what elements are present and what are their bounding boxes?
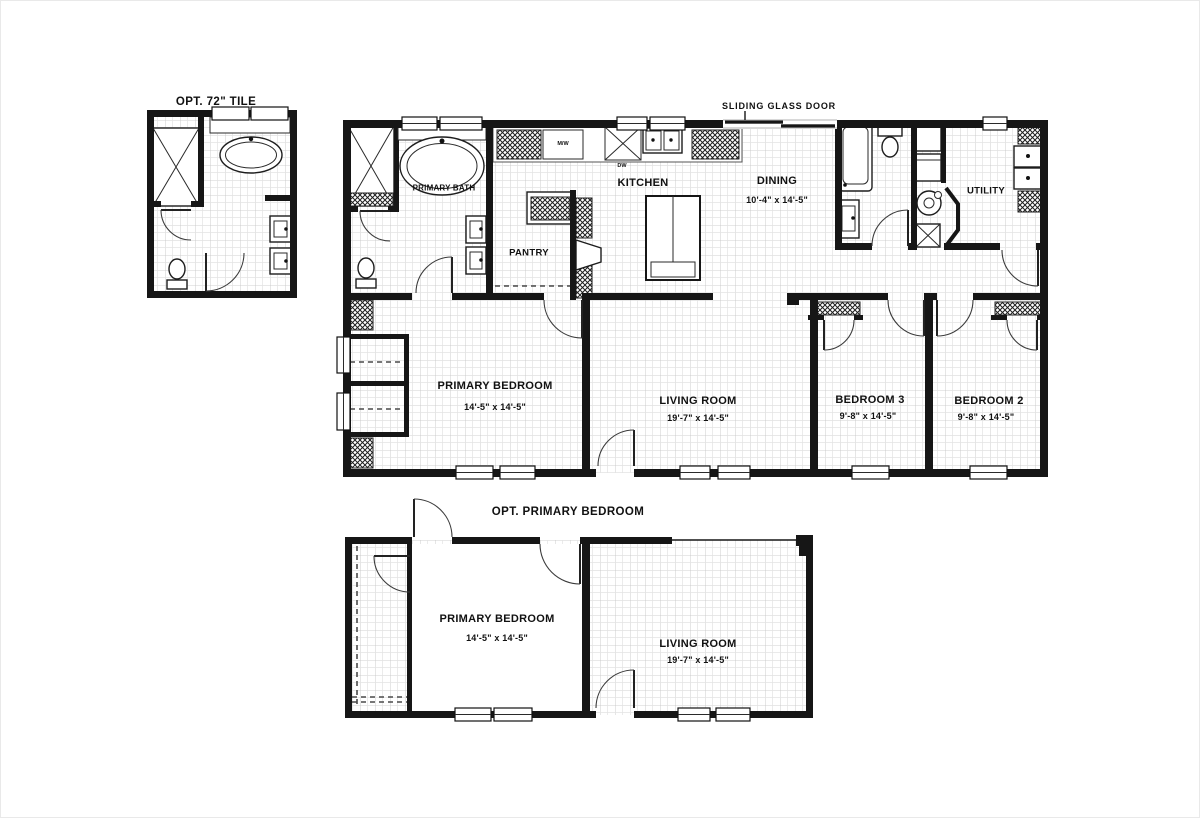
water-heater — [916, 224, 940, 247]
washer — [917, 191, 942, 215]
window — [251, 107, 288, 120]
door-arc — [414, 499, 452, 537]
carpet-floor — [412, 544, 582, 711]
floor-plan-graphics — [0, 0, 1200, 818]
opt-tile-plan-title: OPT. 72" TILE — [176, 96, 256, 108]
shower — [153, 128, 199, 206]
room-dims-bedroom-2: 9'-8" x 14'-5" — [958, 412, 1015, 422]
kitchen-island — [646, 196, 700, 280]
toilet — [356, 258, 376, 288]
window — [212, 107, 249, 120]
room-label-dining: DINING — [757, 175, 797, 187]
sink — [270, 248, 291, 274]
room-label-utility: UTILITY — [967, 186, 1005, 197]
sink — [270, 216, 291, 242]
room-dims-primary-bedroom: 14'-5" x 14'-5" — [464, 402, 526, 412]
counter-hatch — [497, 130, 541, 159]
room-label-bedroom-2: BEDROOM 2 — [954, 395, 1023, 407]
microwave-label: M/W — [557, 141, 568, 147]
opt-tile-plan — [147, 107, 297, 298]
room-dims-dining: 10'-4" x 14'-5" — [746, 195, 808, 205]
kitchen-sink — [643, 128, 682, 153]
opt-primary-bedroom-title: OPT. PRIMARY BEDROOM — [492, 506, 644, 518]
counter-hatch — [692, 130, 739, 159]
opt-room-dims-primary-bedroom: 14'-5" x 14'-5" — [466, 633, 528, 643]
counter-hatch — [1018, 191, 1042, 212]
opt-primary-bedroom-plan — [345, 499, 813, 721]
opt-room-dims-living-room: 19'-7" x 14'-5" — [667, 655, 729, 665]
room-dims-bedroom-3: 9'-8" x 14'-5" — [840, 411, 897, 421]
room-label-pantry: PANTRY — [509, 248, 549, 259]
opt-room-label-primary-bedroom: PRIMARY BEDROOM — [439, 613, 554, 625]
opt-room-label-living-room: LIVING ROOM — [659, 638, 736, 650]
room-label-primary-bath: PRIMARY BATH — [413, 184, 476, 193]
room-label-kitchen: KITCHEN — [618, 177, 669, 189]
sliding-glass-door-label: SLIDING GLASS DOOR — [722, 101, 836, 111]
closet-shelf-hatch — [346, 193, 393, 206]
room-dims-living-room: 19'-7" x 14'-5" — [667, 413, 729, 423]
sink — [466, 247, 486, 274]
sliding-glass-door — [723, 111, 837, 129]
dishwasher — [605, 127, 641, 160]
dishwasher-label: DW — [617, 163, 626, 169]
washer-dryer — [1014, 146, 1042, 189]
toilet — [167, 259, 187, 289]
floor-plan-page: OPT. 72" TILE SLIDING GLASS DOOR PRIMARY… — [0, 0, 1200, 818]
sink — [466, 216, 486, 243]
room-label-living-room: LIVING ROOM — [659, 395, 736, 407]
room-label-primary-bedroom: PRIMARY BEDROOM — [437, 380, 552, 392]
room-label-bedroom-3: BEDROOM 3 — [835, 394, 904, 406]
bathtub — [839, 123, 872, 191]
main-plan — [337, 111, 1048, 479]
